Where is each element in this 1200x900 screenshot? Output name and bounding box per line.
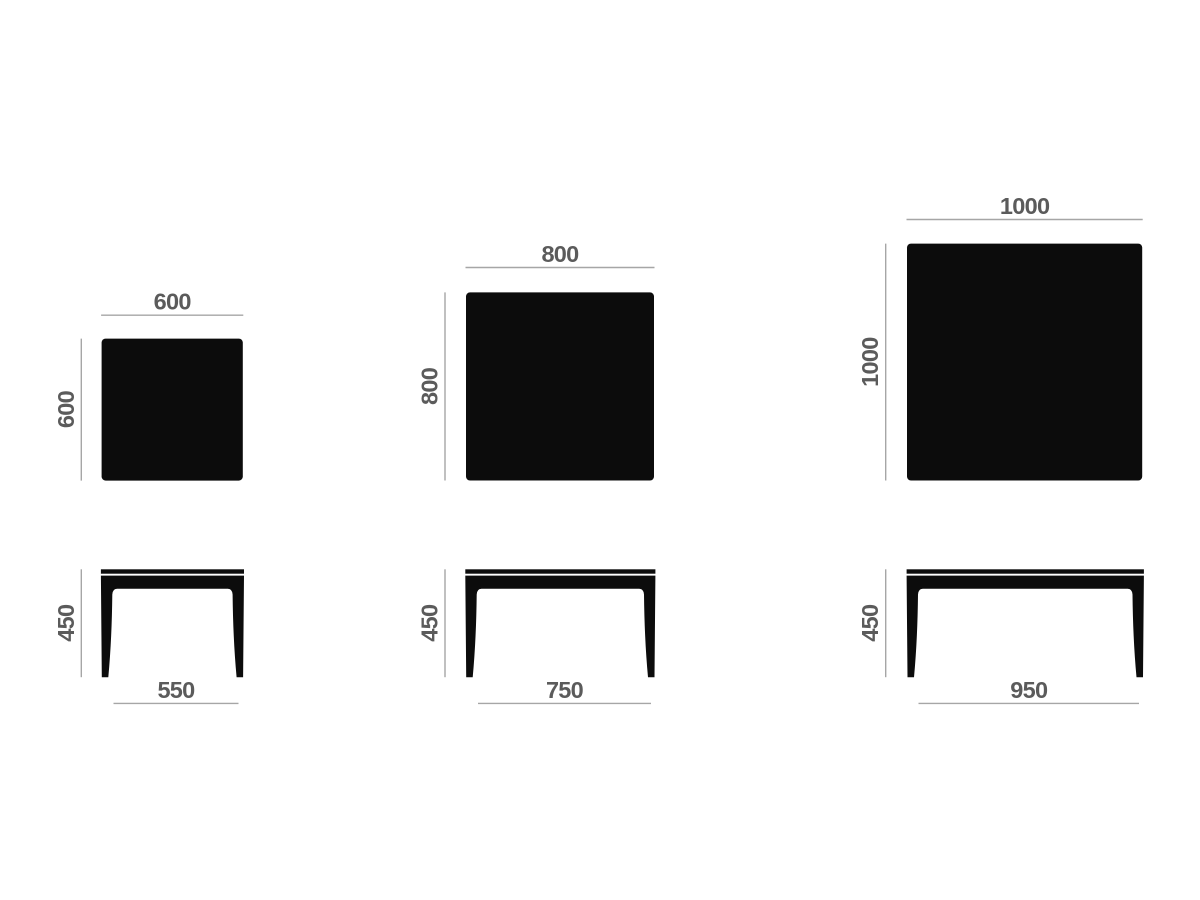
svg-text:450: 450 xyxy=(53,604,79,642)
svg-text:1000: 1000 xyxy=(1000,193,1050,219)
svg-text:450: 450 xyxy=(417,604,443,642)
svg-text:450: 450 xyxy=(857,604,883,642)
svg-text:550: 550 xyxy=(157,677,195,703)
svg-text:950: 950 xyxy=(1010,677,1048,703)
svg-text:800: 800 xyxy=(417,367,443,405)
svg-text:800: 800 xyxy=(541,241,579,267)
svg-text:1000: 1000 xyxy=(857,337,883,387)
svg-text:750: 750 xyxy=(546,677,584,703)
svg-text:600: 600 xyxy=(154,289,192,315)
svg-text:600: 600 xyxy=(53,390,79,428)
